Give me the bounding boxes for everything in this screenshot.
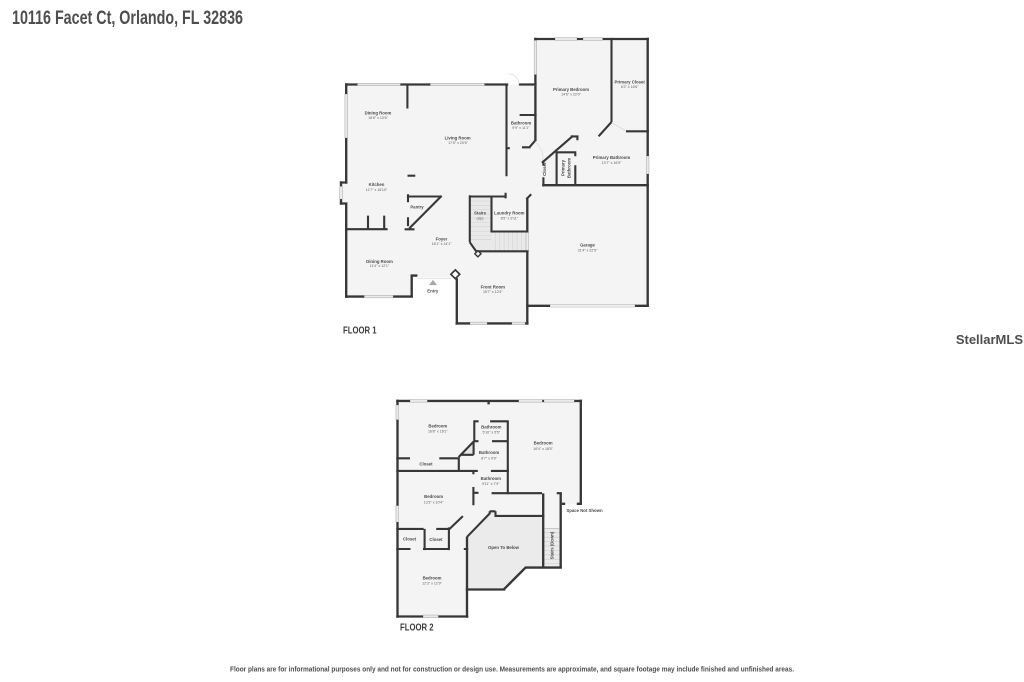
svg-text:16'8" x 16'1": 16'8" x 16'1" (428, 430, 448, 434)
svg-text:16'1" x 14'1": 16'1" x 14'1" (432, 242, 452, 246)
svg-text:5'10" x 5'5": 5'10" x 5'5" (482, 430, 500, 434)
svg-text:Front Room: Front Room (481, 284, 506, 289)
svg-text:31'4" x 22'5": 31'4" x 22'5" (578, 248, 598, 252)
svg-text:FLOOR 2: FLOOR 2 (400, 623, 434, 634)
svg-text:Stairs (Down): Stairs (Down) (550, 531, 555, 559)
svg-text:13'7" x 16'9": 13'7" x 16'9" (602, 161, 622, 165)
svg-text:(Up): (Up) (477, 216, 484, 220)
svg-text:Foyer: Foyer (436, 236, 448, 241)
svg-text:Living Room: Living Room (445, 136, 471, 141)
svg-text:11'7" x 16'10": 11'7" x 16'10" (366, 188, 388, 192)
svg-text:8'7" x 9'9": 8'7" x 9'9" (481, 456, 497, 460)
svg-text:14'6" x 22'0": 14'6" x 22'0" (561, 93, 581, 97)
svg-text:Bedroom: Bedroom (428, 423, 447, 428)
svg-text:Primary Bedroom: Primary Bedroom (553, 87, 589, 92)
svg-text:8'5" x 9'11": 8'5" x 9'11" (501, 216, 519, 220)
svg-text:Primary Closet: Primary Closet (615, 79, 646, 84)
svg-text:11'4" x 12'1": 11'4" x 12'1" (370, 264, 390, 268)
svg-text:15'7" x 12'4": 15'7" x 12'4" (483, 290, 503, 294)
svg-text:Bathroom: Bathroom (481, 476, 501, 481)
svg-text:16'4" x 18'5": 16'4" x 18'5" (533, 447, 553, 451)
svg-text:6'3" x 16'6": 6'3" x 16'6" (621, 85, 639, 89)
svg-text:Entry: Entry (427, 288, 439, 293)
svg-text:Closet: Closet (403, 537, 417, 542)
svg-text:9'9" x 11'1": 9'9" x 11'1" (512, 126, 530, 130)
svg-text:17'5" x 20'6": 17'5" x 20'6" (448, 141, 468, 145)
svg-text:Primary: Primary (561, 159, 566, 176)
svg-text:16'6" x 10'6": 16'6" x 10'6" (368, 116, 388, 120)
svg-text:10116 Facet Ct, Orlando, FL 32: 10116 Facet Ct, Orlando, FL 32836 (12, 7, 243, 29)
svg-text:Laundry Room: Laundry Room (494, 210, 524, 215)
svg-text:Closet: Closet (542, 162, 547, 176)
svg-text:Dining Room: Dining Room (365, 110, 392, 115)
svg-text:Kitchen: Kitchen (369, 182, 385, 187)
svg-text:Primary Bathroom: Primary Bathroom (593, 155, 631, 160)
svg-text:Bathroom: Bathroom (479, 450, 499, 455)
svg-text:Bathroom: Bathroom (511, 121, 531, 126)
svg-text:Bedroom: Bedroom (534, 441, 553, 446)
svg-text:12'3" x 12'9": 12'3" x 12'9" (422, 582, 442, 586)
svg-text:Floor plans are for informatio: Floor plans are for informational purpos… (230, 667, 794, 674)
svg-text:Pantry: Pantry (410, 205, 424, 210)
svg-text:13'3" x 10'4": 13'3" x 10'4" (424, 500, 444, 504)
svg-text:Space Not Shown: Space Not Shown (566, 508, 603, 513)
svg-text:Bedroom: Bedroom (423, 575, 442, 580)
svg-text:StellarMLS: StellarMLS (956, 332, 1024, 347)
svg-text:Stairs: Stairs (474, 210, 487, 215)
svg-text:Bedroom: Bedroom (424, 494, 443, 499)
svg-text:FLOOR 1: FLOOR 1 (343, 326, 377, 337)
svg-text:Garage: Garage (580, 242, 595, 247)
svg-text:9'11" x 7'9": 9'11" x 7'9" (482, 482, 500, 486)
svg-text:Closet: Closet (429, 537, 443, 542)
svg-text:Bathroom: Bathroom (481, 425, 501, 430)
svg-text:Closet: Closet (419, 462, 433, 467)
svg-text:Bathroom: Bathroom (567, 158, 572, 178)
svg-text:Open To Below: Open To Below (488, 545, 520, 550)
